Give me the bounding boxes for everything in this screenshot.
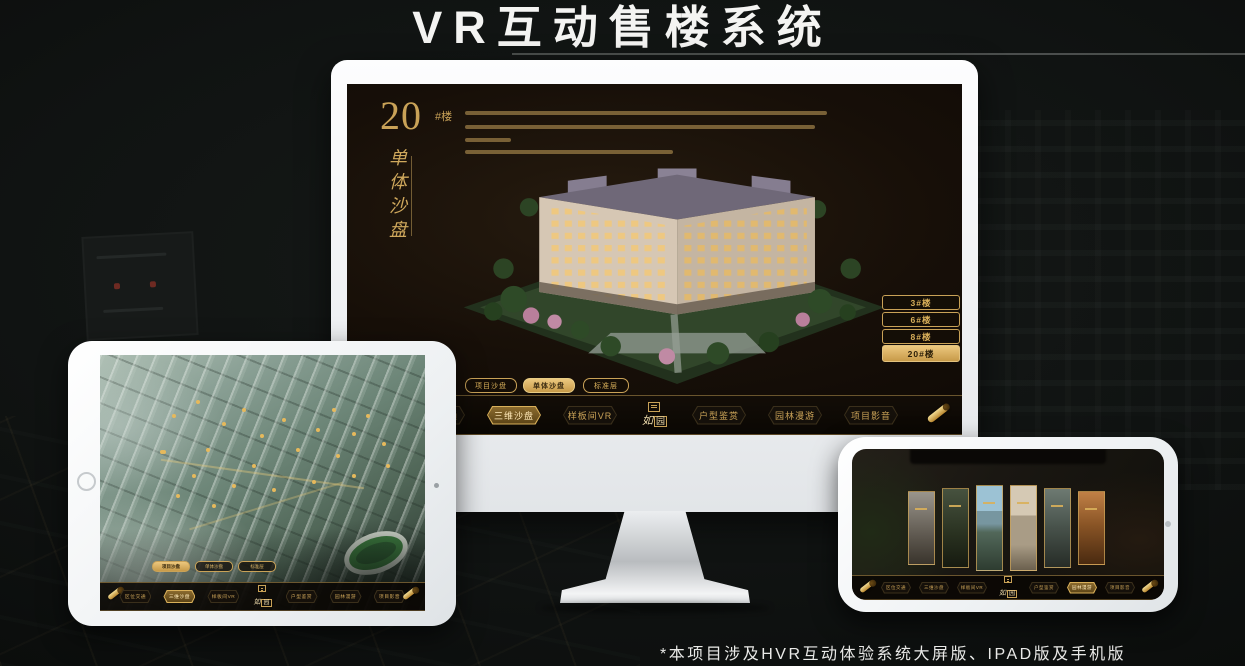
brand-logo: 如园 xyxy=(253,585,271,608)
building-render xyxy=(457,146,887,386)
tab-single-sandbox[interactable]: 单体沙盘 xyxy=(195,561,233,572)
nav-item-floorplans[interactable]: 户型鉴赏 xyxy=(1029,582,1059,594)
nav-item-floorplans[interactable]: 户型鉴赏 xyxy=(286,590,318,603)
description-line xyxy=(465,125,815,129)
section-number: 20 xyxy=(380,92,422,139)
building-button-20[interactable]: 20#楼 xyxy=(882,345,960,362)
nav-item-3d-sandbox[interactable]: 三维沙盘 xyxy=(163,590,195,603)
nav-item-3d-sandbox[interactable]: 三维沙盘 xyxy=(487,406,541,425)
tablet-screen: 项目沙盘 单体沙盘 标准层 区位交通 三维沙盘 样板间VR 如园 户型鉴赏 园林… xyxy=(100,355,425,611)
nav-item-project-media[interactable]: 项目影音 xyxy=(374,590,406,603)
phone-screen: 区位交通 三维沙盘 样板间VR 如园 户型鉴赏 园林漫游 项目影音 xyxy=(852,449,1164,600)
seal-icon xyxy=(1004,576,1012,583)
scroll-icon[interactable] xyxy=(402,587,418,601)
tablet-device: 项目沙盘 单体沙盘 标准层 区位交通 三维沙盘 样板间VR 如园 户型鉴赏 园林… xyxy=(68,341,456,626)
monitor-stand-shadow xyxy=(540,603,770,613)
nav-item-project-media[interactable]: 项目影音 xyxy=(844,406,898,425)
tablet-floor-tabs: 项目沙盘 单体沙盘 标准层 xyxy=(152,561,276,572)
nav-item-location[interactable]: 区位交通 xyxy=(119,590,151,603)
gallery-card[interactable] xyxy=(908,491,935,565)
aerial-vignette xyxy=(100,355,425,611)
tablet-home-button xyxy=(77,472,96,491)
section-unit: #楼 xyxy=(435,108,452,124)
building-button-8[interactable]: 8#楼 xyxy=(882,329,960,344)
tab-project-sandbox[interactable]: 项目沙盘 xyxy=(152,561,190,572)
scroll-icon[interactable] xyxy=(926,403,949,423)
gallery-card[interactable] xyxy=(942,488,969,568)
nav-item-garden-tour[interactable]: 园林漫游 xyxy=(1067,582,1097,594)
building-button-3[interactable]: 3#楼 xyxy=(882,295,960,310)
tablet-camera-icon xyxy=(434,483,439,488)
tab-project-sandbox[interactable]: 项目沙盘 xyxy=(465,378,517,393)
tablet-navbar: 区位交通 三维沙盘 样板间VR 如园 户型鉴赏 园林漫游 项目影音 xyxy=(100,582,425,611)
nav-item-garden-tour[interactable]: 园林漫游 xyxy=(330,590,362,603)
nav-item-showroom-vr[interactable]: 样板间VR xyxy=(207,590,239,603)
description-line xyxy=(465,138,511,142)
interior-eave-render xyxy=(910,449,1106,464)
nav-item-garden-tour[interactable]: 园林漫游 xyxy=(768,406,822,425)
tab-standard-floor[interactable]: 标准层 xyxy=(238,561,276,572)
gallery-card[interactable] xyxy=(976,485,1003,571)
nav-item-floorplans[interactable]: 户型鉴赏 xyxy=(692,406,746,425)
nav-item-3d-sandbox[interactable]: 三维沙盘 xyxy=(919,582,949,594)
tab-standard-floor[interactable]: 标准层 xyxy=(583,378,629,393)
marketing-poster: VR互动售楼系统 20 #楼 单体沙盘 xyxy=(0,0,1245,666)
gallery-card[interactable] xyxy=(1078,491,1105,565)
phone-camera-icon xyxy=(1165,521,1171,527)
phone-device: 区位交通 三维沙盘 样板间VR 如园 户型鉴赏 园林漫游 项目影音 xyxy=(838,437,1178,612)
nav-item-location[interactable]: 区位交通 xyxy=(881,582,911,594)
brand-logo: 如园 xyxy=(642,402,667,428)
tab-single-sandbox[interactable]: 单体沙盘 xyxy=(523,378,575,393)
panorama-gallery xyxy=(908,483,1105,573)
building-button-6[interactable]: 6#楼 xyxy=(882,312,960,327)
nav-item-showroom-vr[interactable]: 样板间VR xyxy=(957,582,987,594)
background-plaque xyxy=(83,233,196,339)
poster-footnote: *本项目涉及HVR互动体验系统大屏版、IPAD版及手机版 xyxy=(660,640,1126,664)
scroll-icon[interactable] xyxy=(859,580,875,594)
seal-icon xyxy=(648,402,660,412)
scroll-icon[interactable] xyxy=(1141,580,1157,594)
description-line xyxy=(465,111,827,115)
background-buildings-texture xyxy=(975,110,1245,490)
gallery-card[interactable] xyxy=(1010,485,1037,571)
brand-logo: 如园 xyxy=(999,576,1017,599)
nav-item-project-media[interactable]: 项目影音 xyxy=(1105,582,1135,594)
section-caption-rule xyxy=(411,156,412,236)
section-title-vertical: 单体沙盘 xyxy=(383,148,409,278)
poster-title: VR互动售楼系统 xyxy=(0,0,1245,56)
gallery-card[interactable] xyxy=(1044,488,1071,568)
nav-item-showroom-vr[interactable]: 样板间VR xyxy=(563,406,617,425)
phone-navbar: 区位交通 三维沙盘 样板间VR 如园 户型鉴赏 园林漫游 项目影音 xyxy=(852,575,1164,600)
seal-icon xyxy=(258,585,266,592)
